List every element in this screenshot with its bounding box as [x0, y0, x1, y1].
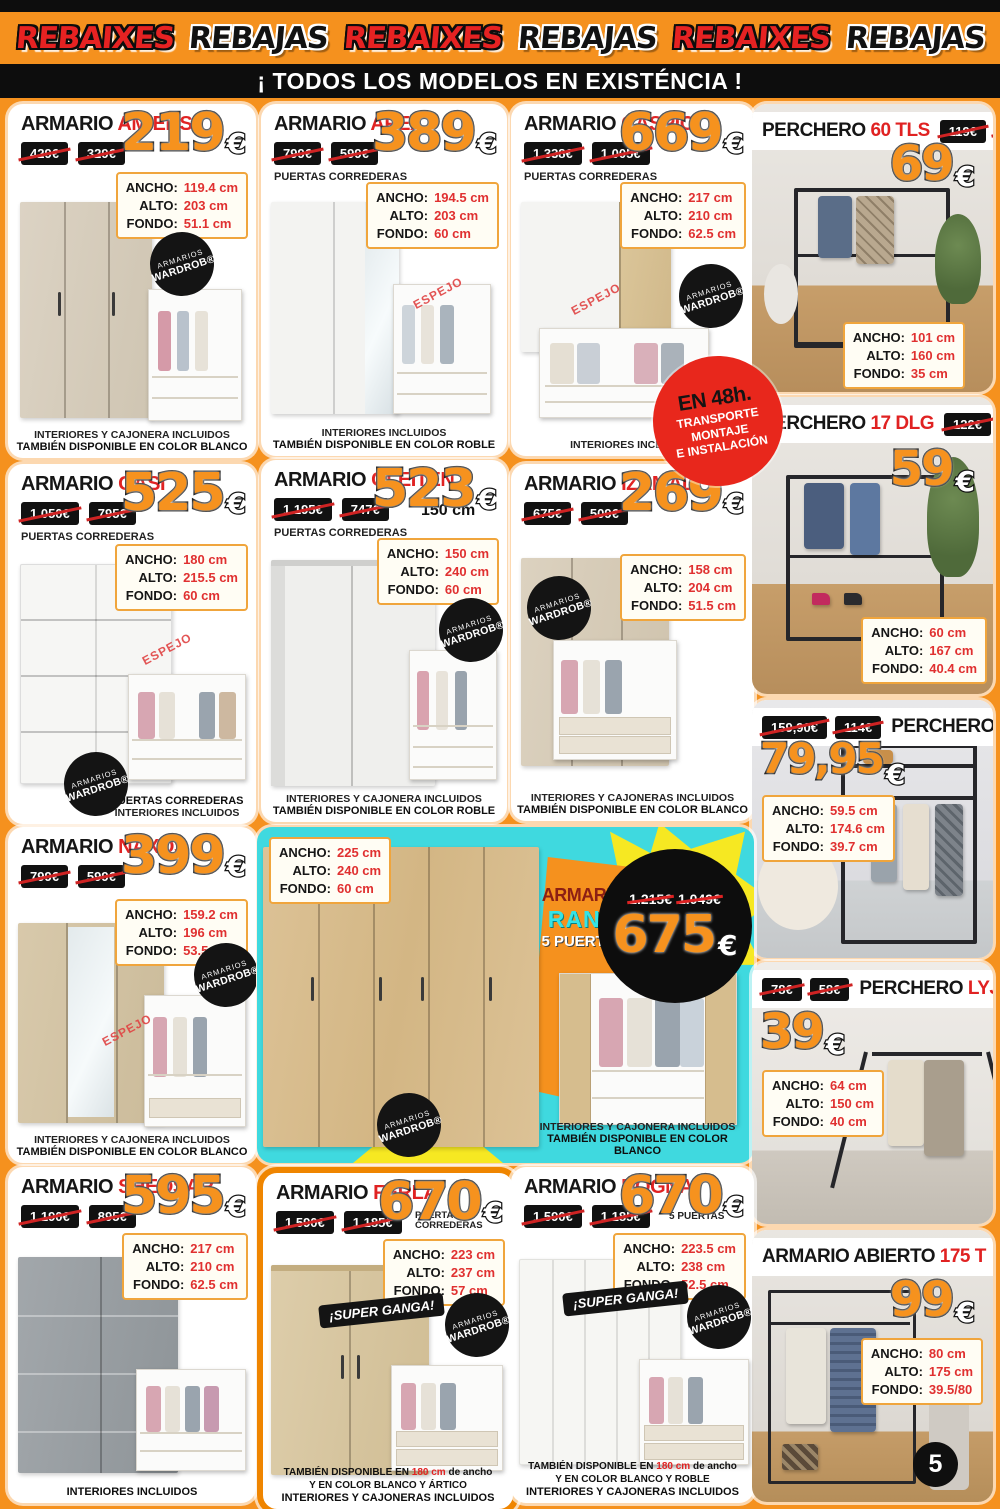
euro-sign: € — [956, 1296, 975, 1329]
dim-value: 35 cm — [911, 366, 955, 381]
price: 669€ — [619, 107, 744, 160]
product-card-perchero-lyj64: 78€58€ PERCHERO LYJ 64 39€ ANCHO:64 cm A… — [752, 962, 993, 1224]
old-price: 1.050€ — [21, 502, 79, 525]
euro-sign: € — [725, 487, 744, 520]
dim-label: ALTO: — [279, 863, 331, 878]
dim-label: ANCHO: — [393, 1247, 445, 1262]
dim-label: ALTO: — [623, 1259, 675, 1274]
dim-value: 159.2 cm — [183, 907, 238, 922]
rebajas-logo: REBAJAS — [516, 21, 658, 56]
dimensions: ANCHO:119.4 cm ALTO:203 cm FONDO:51.1 cm — [116, 172, 248, 239]
dim-label: ANCHO: — [126, 180, 178, 195]
euro-sign: € — [227, 850, 246, 883]
product-card-sheosar: ARMARIO SHEOSAR 1.190€895€ 595€ ANCHO:21… — [8, 1167, 256, 1503]
old-prices: 429€329€ — [21, 142, 125, 165]
product-name: 175 T — [940, 1246, 986, 1267]
old-price: 599€ — [331, 142, 378, 165]
price: 219€ — [121, 107, 246, 160]
dim-value: 39.7 cm — [830, 839, 885, 854]
product-header: 78€58€ PERCHERO LYJ 64 — [752, 970, 993, 1008]
product-kind: ARMARIO — [524, 1176, 616, 1198]
dim-label: FONDO: — [772, 1114, 824, 1129]
dim-value: 80 cm — [929, 1346, 973, 1361]
dim-label: FONDO: — [871, 661, 923, 676]
dim-label: ALTO: — [630, 580, 682, 595]
dimensions: ANCHO:64 cm ALTO:150 cm FONDO:40 cm — [762, 1070, 884, 1137]
dim-label: ALTO: — [853, 348, 905, 363]
old-price: 1.590€ — [276, 1211, 334, 1234]
product-name: 17 DLG — [870, 413, 934, 434]
dim-value: 60 cm — [929, 625, 977, 640]
euro-sign: € — [478, 483, 497, 516]
dimensions: ANCHO:217 cm ALTO:210 cm FONDO:62.5 cm — [620, 182, 746, 249]
product-kind: ARMARIO — [21, 473, 113, 495]
product-card-gasi: ARMARIO GASI 1.050€795€ PUERTAS CORREDER… — [8, 464, 256, 824]
old-price: 329€ — [78, 142, 125, 165]
product-card-perchero-175btl: 159,90€114€ PERCHERO 175 BTL 79,95€ ANCH… — [752, 700, 993, 958]
dim-value: 240 cm — [337, 863, 381, 878]
old-price: 1.338€ — [524, 142, 582, 165]
euro-sign: € — [718, 929, 737, 962]
old-price: 1.195€ — [274, 498, 332, 521]
dim-label: ANCHO: — [772, 803, 824, 818]
dimensions: ANCHO:194.5 cm ALTO:203 cm FONDO:60 cm — [366, 182, 499, 249]
dim-value: 238 cm — [681, 1259, 736, 1274]
old-price: 675€ — [524, 502, 571, 525]
product-kind: ARMARIO — [21, 1176, 113, 1198]
dim-label: ALTO: — [772, 1096, 824, 1111]
dimensions: ANCHO:180 cm ALTO:215.5 cm FONDO:60 cm — [115, 544, 248, 611]
dim-value: 150 cm — [830, 1096, 874, 1111]
price: 39€ — [760, 1008, 845, 1061]
dim-label: ANCHO: — [279, 845, 331, 860]
product-notes: INTERIORES Y CAJONERAS INCLUIDOSTAMBIÉN … — [511, 792, 754, 816]
old-price: 799€ — [274, 142, 321, 165]
product-notes: INTERIORES Y CAJONERA INCLUIDOSTAMBIÉN D… — [8, 1134, 256, 1158]
dim-label: ALTO: — [393, 1265, 445, 1280]
dim-value: 60 cm — [183, 588, 238, 603]
dim-value: 60 cm — [337, 881, 381, 896]
dim-value: 167 cm — [929, 643, 977, 658]
dim-label: ANCHO: — [623, 1241, 675, 1256]
rebajas-logo: REBAJAS — [188, 21, 330, 56]
old-price: 599€ — [78, 865, 125, 888]
dim-value: 175 cm — [929, 1364, 973, 1379]
price: 399€ — [121, 830, 246, 883]
old-prices: 1.050€795€ — [21, 502, 136, 525]
price: 670€ — [378, 1176, 503, 1229]
product-card-ferla: ARMARIO FERLA 1.590€1.185€ PUERTAS CORRE… — [257, 1167, 519, 1509]
old-price: 122€ — [944, 413, 991, 436]
price: 1.215€1.049€ 675€ — [598, 849, 752, 1003]
old-prices: 1.190€895€ — [21, 1205, 136, 1228]
product-kind: PERCHERO — [762, 120, 866, 141]
product-title: ARMARIO ABIERTO 175 T — [762, 1246, 986, 1268]
product-card-naxos: ARMARIO NAXOS 799€599€ 399€ ANCHO:159.2 … — [8, 827, 256, 1163]
old-price: 58€ — [810, 978, 850, 1001]
dim-value: 59.5 cm — [830, 803, 885, 818]
page-number: 5 — [913, 1442, 958, 1487]
dim-value: 40 cm — [830, 1114, 874, 1129]
dim-label: ANCHO: — [125, 907, 177, 922]
euro-sign: € — [478, 127, 497, 160]
euro-sign: € — [227, 127, 246, 160]
dim-label: FONDO: — [125, 588, 177, 603]
dim-label: ANCHO: — [132, 1241, 184, 1256]
product-card-apex: ARMARIO APEX 799€599€ PUERTAS CORREDERAS… — [261, 104, 507, 456]
dimensions: ANCHO:101 cm ALTO:160 cm FONDO:35 cm — [843, 322, 965, 389]
old-price: 429€ — [21, 142, 68, 165]
product-card-izamal: ARMARIO IZAMAL 675€509€ 269€ ANCHO:158 c… — [511, 464, 754, 821]
euro-sign: € — [725, 127, 744, 160]
old-price: 1.590€ — [524, 1205, 582, 1228]
dim-value: 174.6 cm — [830, 821, 885, 836]
sale-banner: REBAIXES REBAJAS REBAIXES REBAJAS REBAIX… — [0, 12, 1000, 64]
dim-label: ANCHO: — [871, 625, 923, 640]
dim-label: FONDO: — [630, 226, 682, 241]
old-prices: 799€599€ — [274, 142, 378, 165]
dim-value: 217 cm — [688, 190, 736, 205]
product-kind: ARMARIO — [276, 1182, 368, 1204]
product-notes: INTERIORES INCLUIDOSTAMBIÉN DISPONIBLE E… — [261, 427, 507, 451]
old-prices: 799€599€ — [21, 865, 125, 888]
dim-label: ALTO: — [132, 1259, 184, 1274]
old-price: 78€ — [762, 978, 802, 1001]
dim-value: 62.5 cm — [190, 1277, 238, 1292]
rebaixes-logo: REBAIXES — [14, 21, 175, 56]
product-name: LYJ 64 — [968, 978, 993, 999]
dim-label: FONDO: — [376, 226, 428, 241]
dimensions: ANCHO:80 cm ALTO:175 cm FONDO:39.5/80 — [861, 1338, 983, 1405]
dim-label: ALTO: — [376, 208, 428, 223]
dim-label: ANCHO: — [871, 1346, 923, 1361]
rebajas-logo: REBAJAS — [844, 21, 986, 56]
product-title: PERCHERO 175 BTL — [891, 716, 993, 738]
dimensions: ANCHO:217 cm ALTO:210 cm FONDO:62.5 cm — [122, 1233, 248, 1300]
product-header: PERCHERO 17 DLG 122€92€ — [752, 405, 993, 443]
euro-sign: € — [227, 1190, 246, 1223]
dim-label: ANCHO: — [376, 190, 428, 205]
dim-value: 160 cm — [911, 348, 955, 363]
dim-label: ALTO: — [772, 821, 824, 836]
product-notes: TAMBIÉN DISPONIBLE EN 180 cm de ancho Y … — [511, 1461, 754, 1498]
dimensions: ANCHO:60 cm ALTO:167 cm FONDO:40.4 cm — [861, 617, 987, 684]
product-kind: ARMARIO ABIERTO — [762, 1246, 935, 1267]
euro-sign: € — [956, 160, 975, 193]
dim-value: 40.4 cm — [929, 661, 977, 676]
dim-value: 62.5 cm — [688, 226, 736, 241]
dim-value: 204 cm — [688, 580, 736, 595]
dim-label: FONDO: — [132, 1277, 184, 1292]
euro-sign: € — [725, 1190, 744, 1223]
product-title: PERCHERO LYJ 64 — [859, 978, 993, 1000]
price: 525€ — [121, 467, 246, 520]
dim-value: 39.5/80 — [929, 1382, 973, 1397]
euro-sign: € — [484, 1196, 503, 1229]
dim-value: 64 cm — [830, 1078, 874, 1093]
product-notes: INTERIORES Y CAJONERA INCLUIDOSTAMBIÉN D… — [8, 429, 256, 453]
product-subtitle: PUERTAS CORREDERAS — [21, 531, 154, 543]
headline: ¡ TODOS LOS MODELOS EN EXISTÉNCIA ! — [0, 64, 1000, 98]
dim-value: 60 cm — [434, 226, 489, 241]
product-card-perchero-17dlg: PERCHERO 17 DLG 122€92€ 59€ ANCHO:60 cm … — [752, 397, 993, 694]
dim-value: 217 cm — [190, 1241, 238, 1256]
product-header: ARMARIO ABIERTO 175 T 198€149€ — [752, 1238, 993, 1276]
product-card-perchero-60tls: PERCHERO 60 TLS 119€89€ 69€ ANCHO:101 cm… — [752, 104, 993, 392]
product-title: PERCHERO 17 DLG — [762, 413, 934, 435]
product-notes: INTERIORES Y CAJONERA INCLUIDOSTAMBIÉN D… — [261, 793, 507, 817]
dimensions: ANCHO:158 cm ALTO:204 cm FONDO:51.5 cm — [620, 554, 746, 621]
dim-value: 196 cm — [183, 925, 238, 940]
top-black-strip — [0, 0, 1000, 12]
dim-label: FONDO: — [279, 881, 331, 896]
old-price: 1.190€ — [21, 1205, 79, 1228]
dim-label: ANCHO: — [387, 546, 439, 561]
dimensions: ANCHO:150 cm ALTO:240 cm FONDO:60 cm — [377, 538, 499, 605]
product-notes: INTERIORES Y CAJONERA INCLUIDOSTAMBIÉN D… — [533, 1121, 742, 1157]
euro-sign: € — [826, 1028, 845, 1061]
dim-label: ANCHO: — [853, 330, 905, 345]
dimensions: ANCHO:59.5 cm ALTO:174.6 cm FONDO:39.7 c… — [762, 795, 895, 862]
dim-label: ALTO: — [387, 564, 439, 579]
dim-value: 194.5 cm — [434, 190, 489, 205]
price: 595€ — [121, 1170, 246, 1223]
dim-label: ALTO: — [630, 208, 682, 223]
dim-value: 150 cm — [445, 546, 489, 561]
dim-label: FONDO: — [125, 943, 177, 958]
euro-sign: € — [227, 487, 246, 520]
product-card-amiens: ARMARIO AMIENS 429€329€ 219€ ANCHO:119.4… — [8, 104, 256, 458]
dim-label: ALTO: — [126, 198, 178, 213]
dim-label: ANCHO: — [125, 552, 177, 567]
dim-value: 210 cm — [190, 1259, 238, 1274]
price: 69€ — [890, 140, 975, 193]
dim-label: FONDO: — [853, 366, 905, 381]
rebaixes-logo: REBAIXES — [342, 21, 503, 56]
euro-sign: € — [886, 758, 905, 791]
price: 59€ — [890, 445, 975, 498]
product-kind: ARMARIO — [21, 113, 113, 135]
dim-value: 60 cm — [445, 582, 489, 597]
product-kind: PERCHERO — [859, 978, 963, 999]
dim-value: 158 cm — [688, 562, 736, 577]
dim-value: 223.5 cm — [681, 1241, 736, 1256]
dim-value: 180 cm — [183, 552, 238, 567]
dim-label: ALTO: — [871, 643, 923, 658]
dim-value: 119.4 cm — [184, 180, 238, 195]
dim-label: ALTO: — [871, 1364, 923, 1379]
dim-value: 240 cm — [445, 564, 489, 579]
product-notes: TAMBIÉN DISPONIBLE EN 180 cm de ancho Y … — [263, 1467, 513, 1504]
dimensions: ANCHO:225 cm ALTO:240 cm FONDO:60 cm — [269, 837, 391, 904]
dim-value: 225 cm — [337, 845, 381, 860]
dim-label: FONDO: — [630, 598, 682, 613]
dim-value: 203 cm — [184, 198, 238, 213]
dim-value: 51.1 cm — [184, 216, 238, 231]
dim-value: 203 cm — [434, 208, 489, 223]
catalog-page: REBAIXES REBAJAS REBAIXES REBAJAS REBAIX… — [0, 0, 1000, 1509]
old-prices: 675€509€ — [524, 502, 628, 525]
product-card-gleiten: ARMARIO GLEITEN 1.195€747€ 150 cm PUERTA… — [261, 460, 507, 822]
product-kind: ARMARIO — [274, 469, 366, 491]
dim-value: 237 cm — [451, 1265, 495, 1280]
dim-value: 101 cm — [911, 330, 955, 345]
product-kind: PERCHERO — [891, 716, 993, 737]
dim-value: 215.5 cm — [183, 570, 238, 585]
product-card-rank: ANCHO:225 cm ALTO:240 cm FONDO:60 cm ARM… — [257, 827, 754, 1163]
euro-sign: € — [956, 465, 975, 498]
product-kind: ARMARIO — [524, 473, 616, 495]
dim-label: FONDO: — [387, 582, 439, 597]
dim-label: ALTO: — [125, 570, 177, 585]
dim-label: FONDO: — [126, 216, 178, 231]
product-kind: ARMARIO — [21, 836, 113, 858]
dim-value: 223 cm — [451, 1247, 495, 1262]
dim-label: ANCHO: — [630, 190, 682, 205]
product-card-dogna: ARMARIO DOGNA 1.590€1.185€ 5 PUERTAS 670… — [511, 1167, 754, 1503]
old-price: 799€ — [21, 865, 68, 888]
dim-label: FONDO: — [871, 1382, 923, 1397]
price: 670€ — [619, 1170, 744, 1223]
dim-label: ANCHO: — [772, 1078, 824, 1093]
price: 79,95€ — [760, 738, 905, 791]
dim-label: ALTO: — [125, 925, 177, 940]
dim-label: FONDO: — [772, 839, 824, 854]
dim-label: ANCHO: — [630, 562, 682, 577]
price: 389€ — [372, 107, 497, 160]
dim-value: 210 cm — [688, 208, 736, 223]
dim-value: 51.5 cm — [688, 598, 736, 613]
price: 523€ — [372, 463, 497, 516]
product-kind: ARMARIO — [524, 113, 616, 135]
product-notes: INTERIORES INCLUIDOS — [8, 1486, 256, 1498]
product-kind: ARMARIO — [274, 113, 366, 135]
price: 99€ — [890, 1276, 975, 1329]
rebaixes-logo: REBAIXES — [670, 21, 831, 56]
